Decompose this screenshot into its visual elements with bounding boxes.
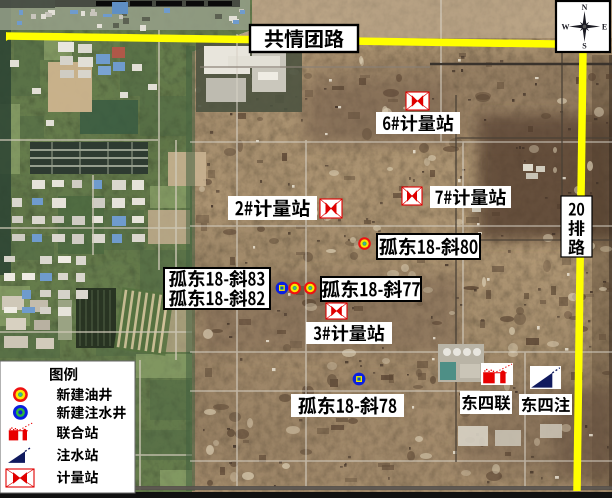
svg-text:S: S <box>582 42 587 51</box>
svg-text:W: W <box>562 22 570 31</box>
svg-text:E: E <box>602 22 607 31</box>
svg-text:N: N <box>582 3 588 12</box>
